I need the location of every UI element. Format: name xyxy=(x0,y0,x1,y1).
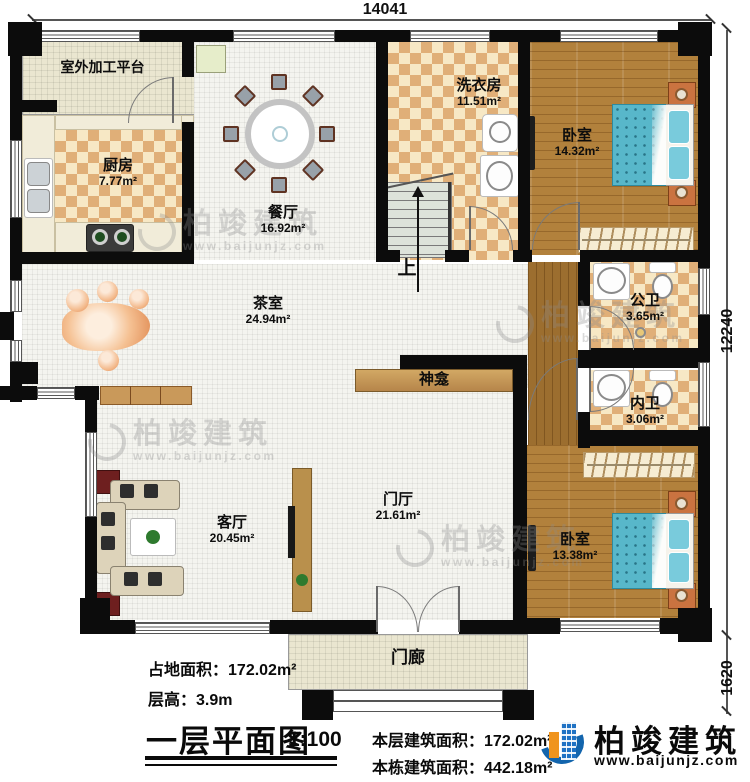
stairs-handrail xyxy=(448,182,451,258)
dining-chair xyxy=(319,126,335,142)
cushion xyxy=(148,572,162,586)
bed2-sheet xyxy=(652,514,666,588)
lamp xyxy=(675,589,688,602)
floor-height-label: 层高： xyxy=(148,692,196,709)
window xyxy=(10,140,22,218)
room-name: 门厅 xyxy=(353,492,443,509)
tv-cabinet xyxy=(292,468,312,612)
window xyxy=(10,280,22,312)
room-area: 21.61m² xyxy=(353,509,443,522)
door-leaf xyxy=(172,77,174,123)
watermark-text: 柏竣建筑 xyxy=(133,420,277,449)
wall xyxy=(445,250,469,262)
wall xyxy=(578,412,590,448)
room-name: 餐厅 xyxy=(238,205,328,222)
stone xyxy=(129,289,149,309)
room-area: 11.51m² xyxy=(434,95,524,108)
room-area: 14.32m² xyxy=(532,145,622,158)
window xyxy=(10,340,22,362)
room-name: 客厅 xyxy=(187,515,277,532)
pillow xyxy=(668,519,690,550)
wall xyxy=(97,620,135,634)
room-label-kitchen: 厨房 7.77m² xyxy=(73,158,163,188)
stairs-up-text: 上 xyxy=(385,258,429,279)
stove-burner xyxy=(92,229,108,245)
pillow xyxy=(668,110,690,144)
room-label-bedroom2: 卧室 13.38m² xyxy=(530,532,620,562)
cabinet-divider xyxy=(130,386,131,405)
room-label-bedroom1: 卧室 14.32m² xyxy=(532,128,622,158)
lamp xyxy=(675,497,688,510)
room-name: 门廊 xyxy=(348,648,468,667)
tv-living xyxy=(288,506,295,558)
washing-machine-drum xyxy=(489,121,511,143)
porch-step xyxy=(333,690,503,701)
room-name: 神龛 xyxy=(389,372,479,389)
window xyxy=(560,30,658,42)
wall xyxy=(518,42,530,262)
window xyxy=(560,620,660,632)
watermark-url: www.baijunjz.com xyxy=(133,449,277,465)
watermark-logo-icon xyxy=(81,416,134,469)
room-label-platform: 室外加工平台 xyxy=(45,60,160,76)
cabinet-row xyxy=(100,386,192,405)
window xyxy=(233,30,335,42)
wall xyxy=(590,348,698,368)
room-name: 洗衣房 xyxy=(434,78,524,95)
wall xyxy=(490,30,560,42)
room-name: 茶室 xyxy=(223,296,313,313)
floor-height-line: 层高：3.9m xyxy=(148,686,232,710)
wall xyxy=(513,355,527,622)
wall xyxy=(10,100,57,112)
window xyxy=(410,30,490,42)
stone xyxy=(98,350,119,371)
public-bath-toilet-tank xyxy=(649,262,676,273)
cushion xyxy=(120,484,134,498)
wall xyxy=(698,427,710,640)
dimension-top: 14041 xyxy=(345,1,425,19)
watermark: 柏竣建筑 www.baijunjz.com xyxy=(88,420,277,465)
wall xyxy=(466,620,522,634)
wall xyxy=(0,386,37,400)
watermark-logo-icon xyxy=(389,522,442,575)
room-area: 13.38m² xyxy=(530,549,620,562)
land-area-line: 占地面积：172.02m² xyxy=(148,656,297,680)
room-area: 24.94m² xyxy=(223,313,313,326)
room-area: 3.06m² xyxy=(600,413,690,426)
land-area-value: 172.02m² xyxy=(228,662,297,679)
cushion xyxy=(144,484,158,498)
entrance-door-leaf xyxy=(458,586,460,632)
watermark-url: www.baijunjz.com xyxy=(183,239,327,255)
wall xyxy=(10,42,22,140)
room-area: 7.77m² xyxy=(73,175,163,188)
wall xyxy=(182,30,194,77)
kitchen-sink-basin xyxy=(27,162,50,186)
wall xyxy=(580,250,698,262)
title-underline xyxy=(145,764,337,766)
door-leaf xyxy=(589,368,591,412)
floor-area-label: 本层建筑面积： xyxy=(372,733,484,750)
door-jamb xyxy=(459,620,466,634)
room-label-living: 客厅 20.45m² xyxy=(187,515,277,545)
building-area-label: 本栋建筑面积： xyxy=(372,760,484,777)
room-label-dining: 餐厅 16.92m² xyxy=(238,205,328,235)
wall xyxy=(376,42,388,262)
porch-step xyxy=(333,701,503,712)
wall xyxy=(590,430,698,446)
room-area: 16.92m² xyxy=(238,222,328,235)
building-area-line: 本栋建筑面积：442.18m² xyxy=(372,754,553,778)
entrance-door-leaf xyxy=(376,586,378,632)
floor-height-value: 3.9m xyxy=(196,692,232,709)
cushion xyxy=(101,512,115,526)
wall xyxy=(335,30,410,42)
room-label-tearoom: 茶室 24.94m² xyxy=(223,296,313,326)
wall-pilaster xyxy=(0,312,14,340)
stairs-up-label: 上 xyxy=(385,258,429,279)
room-name: 室外加工平台 xyxy=(45,60,160,76)
cabinet-plant xyxy=(296,574,308,586)
wall xyxy=(400,355,513,369)
closet-rod xyxy=(582,239,690,241)
brand-url: www.baijunjz.com xyxy=(594,752,739,768)
laundry-sink xyxy=(486,161,513,191)
room-label-foyer: 门厅 21.61m² xyxy=(353,492,443,522)
stone xyxy=(97,281,118,302)
window xyxy=(32,30,140,42)
refrigerator xyxy=(196,45,226,73)
watermark-logo-icon xyxy=(489,298,542,351)
room-name: 内卫 xyxy=(600,396,690,413)
wall xyxy=(85,517,97,602)
window xyxy=(698,268,710,315)
door-leaf xyxy=(576,358,578,420)
door-leaf xyxy=(578,202,580,250)
wall xyxy=(698,315,710,362)
table-plant xyxy=(146,530,160,544)
dimension-line-top xyxy=(32,19,712,21)
room-label-laundry: 洗衣房 11.51m² xyxy=(434,78,524,108)
room-label-porch: 门廊 xyxy=(348,648,468,667)
sofa-bottom xyxy=(110,566,184,596)
floor-area-line: 本层建筑面积：172.02m² xyxy=(372,727,553,751)
private-bath-toilet-tank xyxy=(649,370,676,381)
dimension-right-main: 12240 xyxy=(719,301,737,361)
dining-chair xyxy=(271,177,287,193)
door-leaf xyxy=(469,206,471,250)
pillow xyxy=(668,552,690,583)
wall xyxy=(270,620,371,634)
pillow xyxy=(668,146,690,180)
stairs-up-arrow-head xyxy=(412,186,424,197)
watermark-logo-icon xyxy=(131,206,184,259)
lamp xyxy=(675,88,688,101)
wall xyxy=(578,350,590,368)
corner-pillar xyxy=(12,362,38,384)
window xyxy=(135,622,270,634)
logo-tower-orange xyxy=(549,732,559,758)
stove-burner xyxy=(114,229,130,245)
porch-pillar xyxy=(503,690,534,720)
wall xyxy=(75,386,99,400)
window xyxy=(698,362,710,427)
dining-table-center xyxy=(272,126,288,142)
wall xyxy=(522,618,560,634)
cabinet-divider xyxy=(160,386,161,405)
dining-chair xyxy=(223,126,239,142)
room-label-public-bath: 公卫 3.65m² xyxy=(600,293,690,323)
wall xyxy=(698,42,710,268)
plan-scale: 1:100 xyxy=(288,728,342,752)
room-label-shrine: 神龛 xyxy=(389,372,479,389)
lamp xyxy=(675,186,688,199)
kitchen-sink-basin xyxy=(27,189,50,213)
dimension-right-porch: 1620 xyxy=(719,648,737,708)
room-name: 卧室 xyxy=(530,532,620,549)
wall xyxy=(10,218,22,280)
room-name: 公卫 xyxy=(600,293,690,310)
window xyxy=(37,387,75,399)
logo-tower-blue xyxy=(561,722,576,760)
watermark-url: www.baijunjz.com xyxy=(541,331,685,347)
public-bath-sink xyxy=(597,267,626,294)
closet-rod xyxy=(587,464,691,466)
wall xyxy=(513,250,532,262)
cushion xyxy=(101,536,115,550)
stone xyxy=(66,289,89,312)
brand-logo-icon xyxy=(540,714,588,772)
room-area: 20.45m² xyxy=(187,532,277,545)
land-area-label: 占地面积： xyxy=(148,662,228,679)
floor-plan: 14041 12240 1620 xyxy=(0,0,750,782)
room-name: 厨房 xyxy=(73,158,163,175)
bed1-sheet xyxy=(652,105,666,185)
plan-title: 一层平面图 xyxy=(146,716,311,761)
room-label-private-bath: 内卫 3.06m² xyxy=(600,396,690,426)
dining-chair xyxy=(271,74,287,90)
room-area: 3.65m² xyxy=(600,310,690,323)
room-name: 卧室 xyxy=(532,128,622,145)
cushion xyxy=(124,572,138,586)
